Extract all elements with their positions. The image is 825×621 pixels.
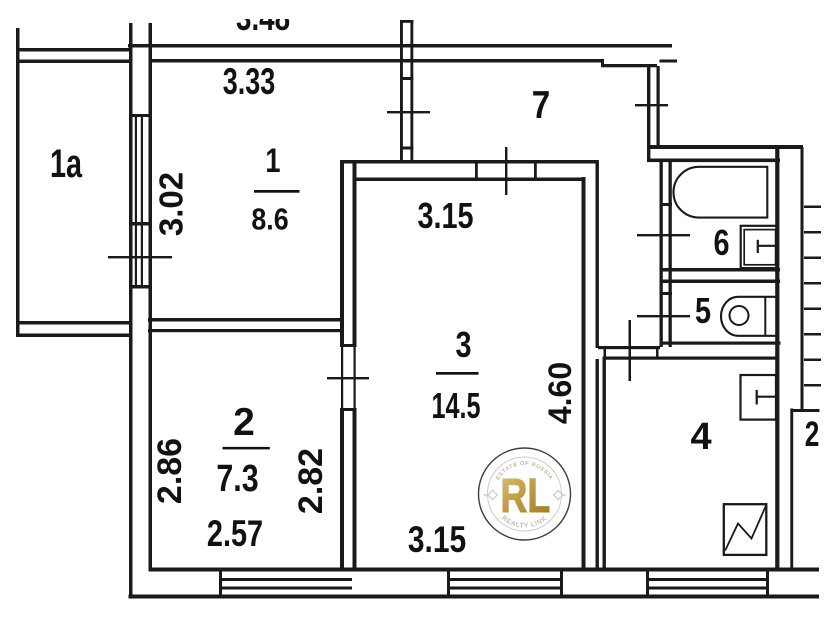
svg-text:1a: 1a bbox=[50, 141, 83, 186]
svg-text:2.82: 2.82 bbox=[292, 448, 330, 514]
svg-text:14.5: 14.5 bbox=[431, 386, 480, 427]
svg-text:8.6: 8.6 bbox=[251, 203, 288, 237]
svg-text:7.3: 7.3 bbox=[216, 458, 258, 500]
svg-text:4.60: 4.60 bbox=[542, 362, 578, 424]
svg-text:7: 7 bbox=[532, 82, 550, 126]
svg-text:RL: RL bbox=[500, 469, 550, 523]
svg-text:3: 3 bbox=[455, 324, 471, 365]
svg-text:1: 1 bbox=[265, 141, 280, 180]
svg-text:3.15: 3.15 bbox=[408, 519, 466, 561]
svg-text:2.86: 2.86 bbox=[151, 438, 189, 504]
svg-text:2: 2 bbox=[233, 401, 255, 444]
svg-text:2.57: 2.57 bbox=[207, 514, 263, 555]
svg-text:3.15: 3.15 bbox=[417, 195, 473, 236]
svg-text:3.02: 3.02 bbox=[153, 172, 190, 236]
svg-text:3.33: 3.33 bbox=[223, 60, 276, 102]
svg-text:6: 6 bbox=[713, 222, 729, 263]
svg-text:4: 4 bbox=[690, 416, 711, 458]
svg-text:5: 5 bbox=[695, 290, 711, 331]
svg-text:2: 2 bbox=[805, 414, 820, 454]
